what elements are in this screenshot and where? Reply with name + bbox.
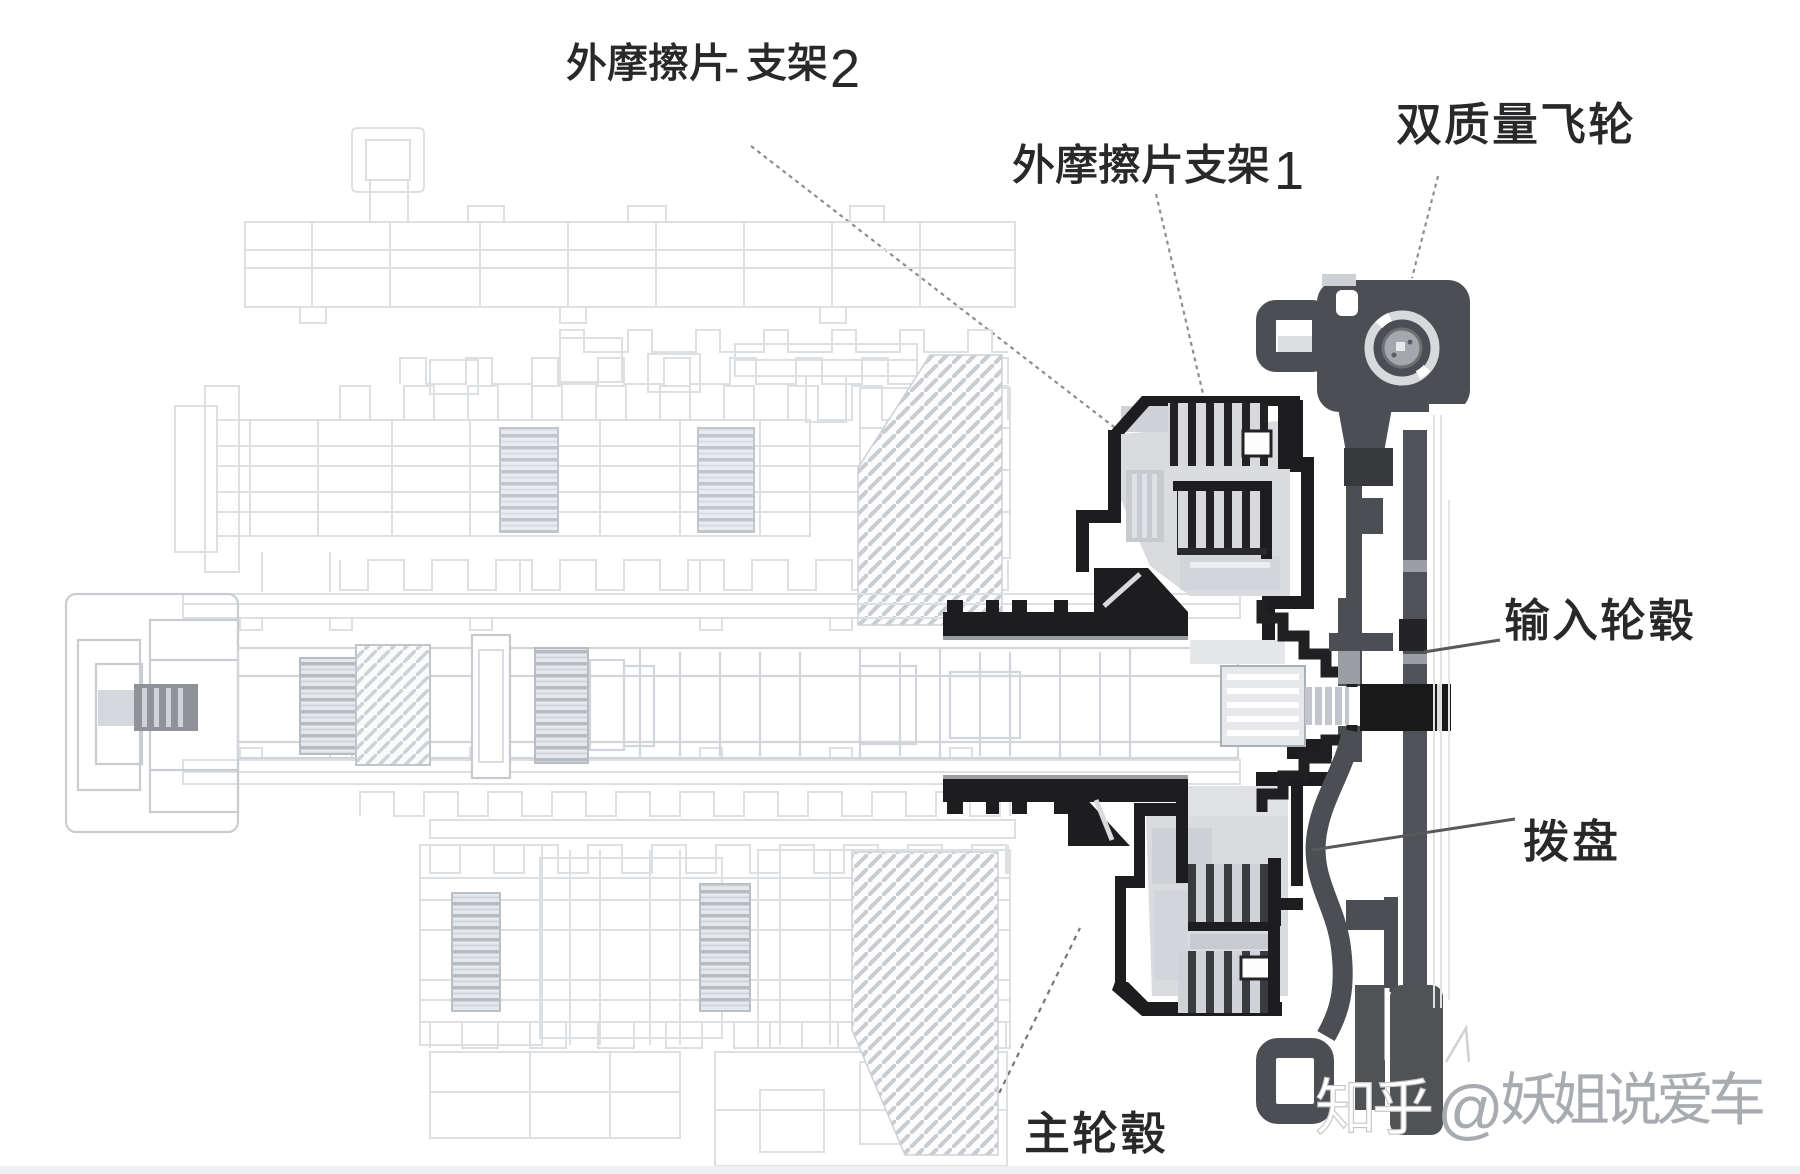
svg-text:-: -: [724, 41, 739, 93]
svg-text:2: 2: [830, 39, 860, 99]
svg-text:@: @: [1437, 1072, 1504, 1146]
svg-text:1: 1: [1274, 141, 1304, 201]
